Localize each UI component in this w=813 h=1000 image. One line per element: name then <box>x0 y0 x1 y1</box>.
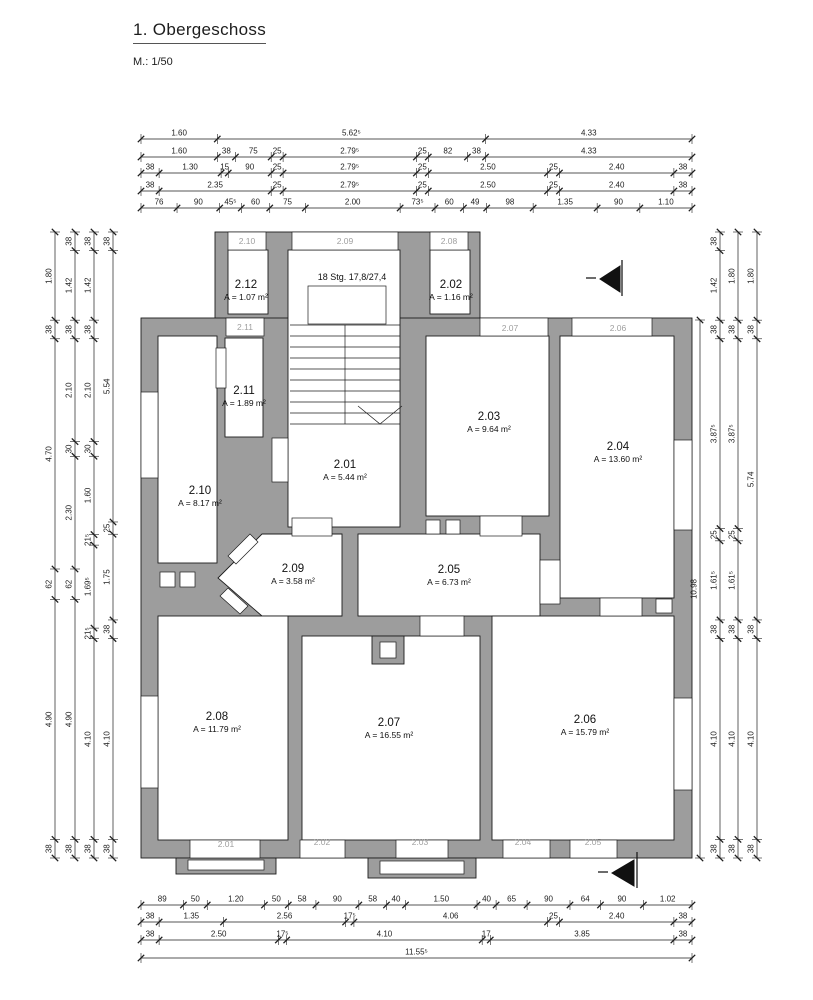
dim-label: 25 <box>549 163 558 172</box>
dim-label: 38 <box>65 844 74 853</box>
window-tag-2.07: 2.07 <box>502 323 519 333</box>
dim-label: 4.33 <box>581 129 597 138</box>
room-label-2.06: 2.06 <box>574 714 596 726</box>
room-2-10-floor <box>158 336 217 563</box>
dim-label: 82 <box>443 147 452 156</box>
dim-label: 38 <box>710 624 719 633</box>
dim-label: 4.10 <box>710 731 719 747</box>
dim-label: 90 <box>245 163 254 172</box>
dim-label: 38 <box>728 844 737 853</box>
dim-label: 25 <box>549 912 558 921</box>
dim-label: 30 <box>65 444 74 453</box>
dim-label: 60 <box>445 198 454 207</box>
dim-label: 5.62⁵ <box>342 129 361 138</box>
stair-note: 18 Stg. 17,8/27,4 <box>318 272 387 282</box>
dim-label: 1.35 <box>184 912 200 921</box>
dim-label: 1.60 <box>84 487 93 503</box>
dim-label: 38 <box>222 147 231 156</box>
room-label-2.11: 2.11 <box>233 385 255 397</box>
room-2-04-floor <box>560 336 674 598</box>
room-area-2.06: A = 15.79 m² <box>561 727 610 737</box>
window-left-upper <box>141 392 158 478</box>
shaft-mid-2 <box>446 520 460 534</box>
room-label-2.10: 2.10 <box>189 485 211 497</box>
dim-label: 1.75 <box>103 569 112 585</box>
room-2-01-floor <box>288 250 400 527</box>
dim-label: 1.20 <box>228 895 244 904</box>
shaft-left-2 <box>180 572 195 587</box>
dim-label: 58 <box>368 895 377 904</box>
dim-label: 25 <box>549 181 558 190</box>
dim-label: 38 <box>747 324 756 333</box>
dim-label: 60 <box>251 198 260 207</box>
dim-label: 10.98 <box>690 578 699 599</box>
dim-label: 30 <box>84 444 93 453</box>
dim-label: 1.42 <box>65 277 74 293</box>
dim-label: 49 <box>471 198 480 207</box>
dim-label: 1.35 <box>557 198 573 207</box>
room-area-2.10: A = 8.17 m² <box>178 498 222 508</box>
dim-label: 38 <box>65 324 74 333</box>
dim-label: 38 <box>728 624 737 633</box>
dim-label: 4.10 <box>84 731 93 747</box>
room-label-2.02: 2.02 <box>440 279 462 291</box>
dim-label: 1.80 <box>747 268 756 284</box>
dim-label: 2.40 <box>609 163 625 172</box>
window-tag-2.01: 2.01 <box>218 839 235 849</box>
dim-label: 62 <box>65 579 74 588</box>
dim-label: 1.80 <box>728 268 737 284</box>
dim-label: 38 <box>45 324 54 333</box>
room-area-2.03: A = 9.64 m² <box>467 424 511 434</box>
sill-2-03 <box>380 861 464 874</box>
dim-label: 2.50 <box>480 163 496 172</box>
floor-plan-drawing: 18 Stg. 17,8/27,4 2.01A = 5.44 m²2.02A =… <box>0 0 813 1000</box>
dim-label: 4.06 <box>443 912 459 921</box>
dim-label: 2.79⁵ <box>340 147 359 156</box>
dim-label: 25 <box>273 181 282 190</box>
room-label-2.07: 2.07 <box>378 717 400 729</box>
dim-label: 21⁵ <box>84 534 93 546</box>
door-2-06 <box>600 598 642 616</box>
dim-label: 2.79⁵ <box>340 163 359 172</box>
dim-label: 38 <box>747 844 756 853</box>
dim-label: 90 <box>333 895 342 904</box>
dim-label: 90 <box>617 895 626 904</box>
door-2-04 <box>540 560 560 604</box>
dim-label: 5.54 <box>103 378 112 394</box>
dim-label: 3.85 <box>574 930 590 939</box>
dim-label: 1.10 <box>658 198 674 207</box>
window-tag-2.05: 2.05 <box>585 837 602 847</box>
room-area-2.02: A = 1.16 m² <box>429 292 473 302</box>
window-tag-2.03: 2.03 <box>412 837 429 847</box>
window-tag-2.08: 2.08 <box>441 236 458 246</box>
dim-label: 65 <box>507 895 516 904</box>
room-area-2.05: A = 6.73 m² <box>427 577 471 587</box>
room-area-2.08: A = 11.79 m² <box>193 724 241 734</box>
dim-label: 1.61⁵ <box>710 571 719 590</box>
dim-label: 38 <box>710 236 719 245</box>
dim-label: 76 <box>155 198 164 207</box>
section-arrow-bottom <box>612 860 634 886</box>
dim-label: 3.87⁵ <box>710 424 719 443</box>
dim-label: 38 <box>146 163 155 172</box>
dim-label: 25 <box>418 147 427 156</box>
section-arrow-top <box>600 266 620 292</box>
dim-label: 38 <box>678 912 687 921</box>
dim-label: 38 <box>678 930 687 939</box>
dim-label: 1.80 <box>45 268 54 284</box>
window-tag-2.09: 2.09 <box>337 236 354 246</box>
dim-label: 64 <box>581 895 590 904</box>
sill-2-01 <box>188 860 264 870</box>
shaft-right <box>656 599 672 613</box>
dim-label: 2.40 <box>609 912 625 921</box>
dim-label: 38 <box>710 324 719 333</box>
dim-label: 17 <box>482 930 491 939</box>
dim-label: 38 <box>84 236 93 245</box>
dim-label: 38 <box>728 324 737 333</box>
room-label-2.05: 2.05 <box>438 564 460 576</box>
door-2-03 <box>480 516 522 536</box>
window-tag-2.06: 2.06 <box>610 323 627 333</box>
chimney-2-07-flue <box>380 642 396 658</box>
dim-label: 38 <box>146 181 155 190</box>
room-label-2.08: 2.08 <box>206 711 228 723</box>
dim-label: 90 <box>194 198 203 207</box>
dim-label: 4.10 <box>377 930 393 939</box>
dim-label: 25 <box>418 181 427 190</box>
dim-label: 1.42 <box>710 277 719 293</box>
room-label-2.03: 2.03 <box>478 411 500 423</box>
dim-label: 1.42 <box>84 277 93 293</box>
dim-label: 38 <box>747 624 756 633</box>
dim-label: 90 <box>544 895 553 904</box>
dim-label: 4.70 <box>45 446 54 462</box>
room-label-2.04: 2.04 <box>607 441 630 453</box>
door-landing-corridor <box>292 518 332 536</box>
dim-label: 2.35 <box>207 181 223 190</box>
dim-label: 4.10 <box>103 731 112 747</box>
dim-label: 38 <box>678 181 687 190</box>
dim-label: 38 <box>103 844 112 853</box>
dim-label: 2.79⁵ <box>340 181 359 190</box>
dim-label: 40 <box>392 895 401 904</box>
dim-label: 73⁵ <box>411 198 423 207</box>
dim-label: 38 <box>146 930 155 939</box>
window-right-lower <box>674 698 692 790</box>
dim-label: 3.87⁵ <box>728 424 737 443</box>
dim-label: 5.74 <box>747 471 756 487</box>
dim-label: 38 <box>710 844 719 853</box>
dim-label: 50 <box>191 895 200 904</box>
window-tag-2.10: 2.10 <box>239 236 256 246</box>
dim-label: 2.10 <box>65 382 74 398</box>
dim-label: 75 <box>283 198 292 207</box>
window-right-upper <box>674 440 692 530</box>
dim-label: 11.55⁵ <box>405 948 428 957</box>
dim-label: 4.90 <box>45 711 54 727</box>
dim-label: 38 <box>84 324 93 333</box>
room-area-2.01: A = 5.44 m² <box>323 472 367 482</box>
shaft-left-1 <box>160 572 175 587</box>
dim-label: 50 <box>272 895 281 904</box>
dim-label: 38 <box>65 236 74 245</box>
dim-label: 90 <box>614 198 623 207</box>
drawing-sheet: 1. Obergeschoss M.: 1/50 <box>0 0 813 1000</box>
room-area-2.07: A = 16.55 m² <box>365 730 414 740</box>
dim-label: 2.40 <box>609 181 625 190</box>
dim-label: 40 <box>482 895 491 904</box>
dim-label: 21⁵ <box>84 627 93 639</box>
room-label-2.09: 2.09 <box>282 563 304 575</box>
door-stair-left <box>272 438 288 482</box>
dim-label: 4.10 <box>747 731 756 747</box>
dim-label: 4.33 <box>581 147 597 156</box>
dim-label: 38 <box>103 624 112 633</box>
door-2-11 <box>216 348 226 388</box>
dim-label: 25 <box>273 163 282 172</box>
dim-label: 38 <box>678 163 687 172</box>
window-tag-2.11: 2.11 <box>237 322 253 332</box>
dim-label: 1.30 <box>182 163 198 172</box>
dim-label: 38 <box>146 912 155 921</box>
dim-label: 1.50 <box>433 895 449 904</box>
dim-label: 1.02 <box>660 895 676 904</box>
door-2-07 <box>420 616 464 636</box>
dim-label: 1.69⁵ <box>84 577 93 596</box>
dim-label: 2.50 <box>211 930 227 939</box>
window-left-lower <box>141 696 158 788</box>
dim-label: 1.60 <box>171 129 187 138</box>
dim-label: 2.50 <box>480 181 496 190</box>
dim-label: 45⁵ <box>224 198 236 207</box>
dim-label: 25 <box>418 163 427 172</box>
dim-label: 62 <box>45 579 54 588</box>
room-area-2.12: A = 1.07 m² <box>224 292 268 302</box>
window-tag-2.04: 2.04 <box>515 837 532 847</box>
dim-label: 2.10 <box>84 382 93 398</box>
shaft-mid-1 <box>426 520 440 534</box>
dim-label: 1.60 <box>171 147 187 156</box>
room-label-2.01: 2.01 <box>334 459 356 471</box>
dim-label: 2.56 <box>277 912 293 921</box>
room-area-2.11: A = 1.89 m² <box>222 398 266 408</box>
dim-label: 1.61⁵ <box>728 571 737 590</box>
dim-label: 75 <box>249 147 258 156</box>
dim-label: 38 <box>84 844 93 853</box>
dim-label: 58 <box>298 895 307 904</box>
dim-label: 38 <box>45 844 54 853</box>
dim-label: 89 <box>158 895 167 904</box>
dim-label: 2.30 <box>65 504 74 520</box>
dim-label: 38 <box>472 147 481 156</box>
dim-label: 2.00 <box>345 198 361 207</box>
dim-label: 4.10 <box>728 731 737 747</box>
dim-label: 25 <box>273 147 282 156</box>
room-area-2.09: A = 3.58 m² <box>271 576 315 586</box>
room-label-2.12: 2.12 <box>235 279 257 291</box>
dim-label: 4.90 <box>65 711 74 727</box>
room-area-2.04: A = 13.60 m² <box>594 454 643 464</box>
window-tag-2.02: 2.02 <box>314 837 331 847</box>
dim-label: 98 <box>505 198 514 207</box>
dim-label: 38 <box>103 236 112 245</box>
